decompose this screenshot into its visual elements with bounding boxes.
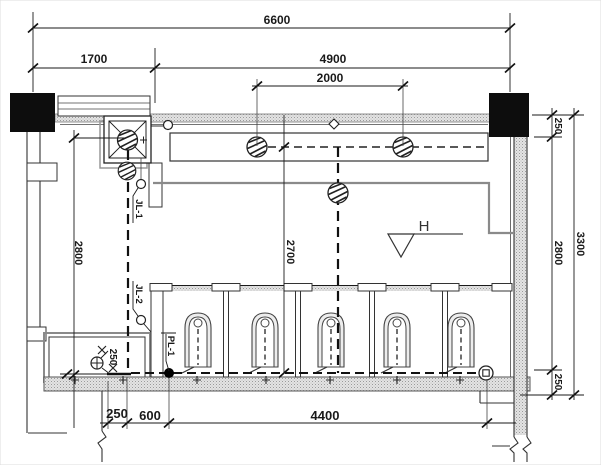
light-icon: [118, 162, 136, 180]
cad-drawing-sheet: JL-1 JL-2 PL-1 250: [0, 0, 601, 465]
ground-terminal-icon: [479, 366, 493, 380]
stall-wall-cap-right: [492, 284, 512, 292]
wall-outlet-icon: [164, 121, 173, 130]
dim-center-run: 2700: [284, 240, 296, 264]
dim-right-room: 2800: [552, 241, 564, 265]
riser1-label: JL-1: [133, 199, 144, 219]
dim-main-run: 4400: [311, 408, 340, 423]
fan-light-icon: [118, 130, 138, 150]
squat-toilet: [315, 313, 344, 373]
stall-wall-cap-left: [150, 284, 172, 292]
vestibule-wall-stub: [149, 163, 162, 207]
dim-total-width: 6600: [264, 13, 291, 27]
stall-end-wall: [151, 291, 163, 377]
squat-toilet: [249, 313, 278, 373]
dim-right-total: 3300: [574, 232, 586, 256]
squat-toilet: [182, 313, 211, 373]
riser2-label: JL-2: [133, 284, 144, 304]
squat-toilet: [381, 313, 410, 373]
dim-right-bay: 4900: [320, 52, 347, 66]
restroom-electrical-plan: JL-1 JL-2 PL-1 250: [0, 0, 601, 465]
dim-right-top: 250: [552, 118, 563, 135]
elevation-label: H: [419, 218, 430, 235]
drain-label: PL-1: [165, 336, 176, 357]
column-right: [489, 93, 529, 137]
bottom-wall: [44, 377, 530, 391]
riser-connector-icon: [137, 316, 146, 325]
dim-light-spacing: 2000: [317, 71, 344, 85]
squat-toilet: [445, 313, 474, 373]
ground-terminal: [479, 366, 493, 380]
entry-window: [58, 96, 150, 116]
riser-connector-icon: [137, 180, 146, 189]
mop-offset-dim: 250: [107, 349, 118, 366]
light-icon: [328, 183, 348, 203]
column-left: [10, 93, 55, 132]
dim-wall-to-wire: 250: [106, 406, 128, 421]
dim-left-bay: 1700: [81, 52, 108, 66]
dim-right-bottom: 250: [552, 374, 563, 391]
dim-left-run: 2800: [72, 241, 84, 265]
dim-wire-to-drain: 600: [139, 408, 161, 423]
